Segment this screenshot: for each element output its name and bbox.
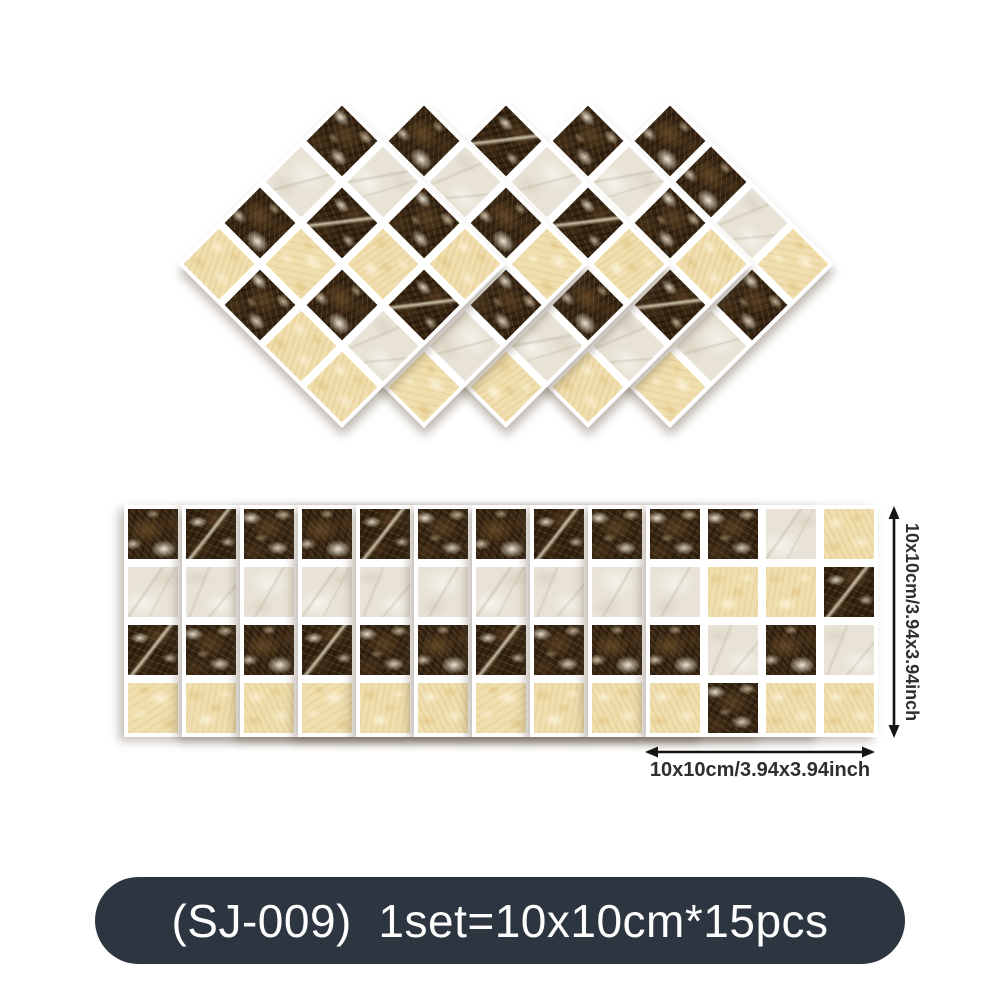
- mosaic-tile-cream: [186, 567, 236, 617]
- mosaic-tile-cream: [418, 567, 468, 617]
- mosaic-tile-dark: [418, 625, 468, 675]
- mosaic-tile-cream: [592, 567, 642, 617]
- mosaic-tile-dark: [592, 509, 642, 559]
- mosaic-tile-beige: [766, 567, 816, 617]
- mosaic-tile-dark: [302, 625, 352, 675]
- mosaic-tile-beige: [592, 683, 642, 733]
- mosaic-tile-dark: [186, 509, 236, 559]
- mosaic-tile-beige: [824, 509, 874, 559]
- mosaic-tile-dark: [186, 625, 236, 675]
- mosaic-tile-dark: [128, 509, 178, 559]
- mosaic-tile-dark: [650, 509, 700, 559]
- mosaic-tile-beige: [418, 683, 468, 733]
- mosaic-tile-cream: [766, 509, 816, 559]
- product-code-badge: (SJ-009) 1set=10x10cm*15pcs: [95, 877, 905, 964]
- product-image: 10x10cm/3.94x3.94inch 10x10cm/3.94x3.94i…: [0, 0, 1002, 1002]
- height-arrow-icon: [886, 505, 902, 739]
- mosaic-tile-dark: [824, 567, 874, 617]
- mosaic-tile-cream: [360, 567, 410, 617]
- mosaic-sheet: [646, 505, 878, 737]
- mosaic-tile-beige: [360, 683, 410, 733]
- mosaic-tile-dark: [302, 509, 352, 559]
- mosaic-tile-dark: [534, 509, 584, 559]
- mosaic-tile-beige: [766, 683, 816, 733]
- mosaic-tile-beige: [302, 683, 352, 733]
- mosaic-tile-beige: [650, 683, 700, 733]
- mosaic-tile-cream: [128, 567, 178, 617]
- mosaic-tile-dark: [360, 625, 410, 675]
- mosaic-tile-cream: [476, 567, 526, 617]
- mosaic-tile-dark: [476, 625, 526, 675]
- mosaic-tile-beige: [534, 683, 584, 733]
- height-dimension-label: 10x10cm/3.94x3.94inch: [901, 505, 922, 739]
- mosaic-tile-cream: [534, 567, 584, 617]
- mosaic-tile-beige: [244, 683, 294, 733]
- mosaic-tile-beige: [186, 683, 236, 733]
- mosaic-tile-dark: [244, 509, 294, 559]
- mosaic-tile-dark: [766, 625, 816, 675]
- mosaic-tile-dark: [360, 509, 410, 559]
- mosaic-tile-beige: [708, 567, 758, 617]
- width-arrow-icon: [644, 744, 876, 760]
- mosaic-tile-dark: [708, 683, 758, 733]
- mosaic-tile-dark: [476, 509, 526, 559]
- mosaic-tile-cream: [650, 567, 700, 617]
- mosaic-tile-dark: [244, 625, 294, 675]
- mosaic-tile-cream: [302, 567, 352, 617]
- product-code-text: (SJ-009) 1set=10x10cm*15pcs: [171, 894, 828, 948]
- mosaic-tile-dark: [650, 625, 700, 675]
- mosaic-tile-dark: [418, 509, 468, 559]
- mosaic-tile-beige: [824, 683, 874, 733]
- mosaic-tile-cream: [824, 625, 874, 675]
- mosaic-tile-cream: [708, 625, 758, 675]
- mosaic-tile-dark: [592, 625, 642, 675]
- mosaic-tile-dark: [708, 509, 758, 559]
- mosaic-tile-dark: [534, 625, 584, 675]
- mosaic-tile-beige: [476, 683, 526, 733]
- mosaic-tile-beige: [128, 683, 178, 733]
- mosaic-tile-cream: [244, 567, 294, 617]
- mosaic-tile-dark: [128, 625, 178, 675]
- width-dimension-label: 10x10cm/3.94x3.94inch: [646, 759, 874, 782]
